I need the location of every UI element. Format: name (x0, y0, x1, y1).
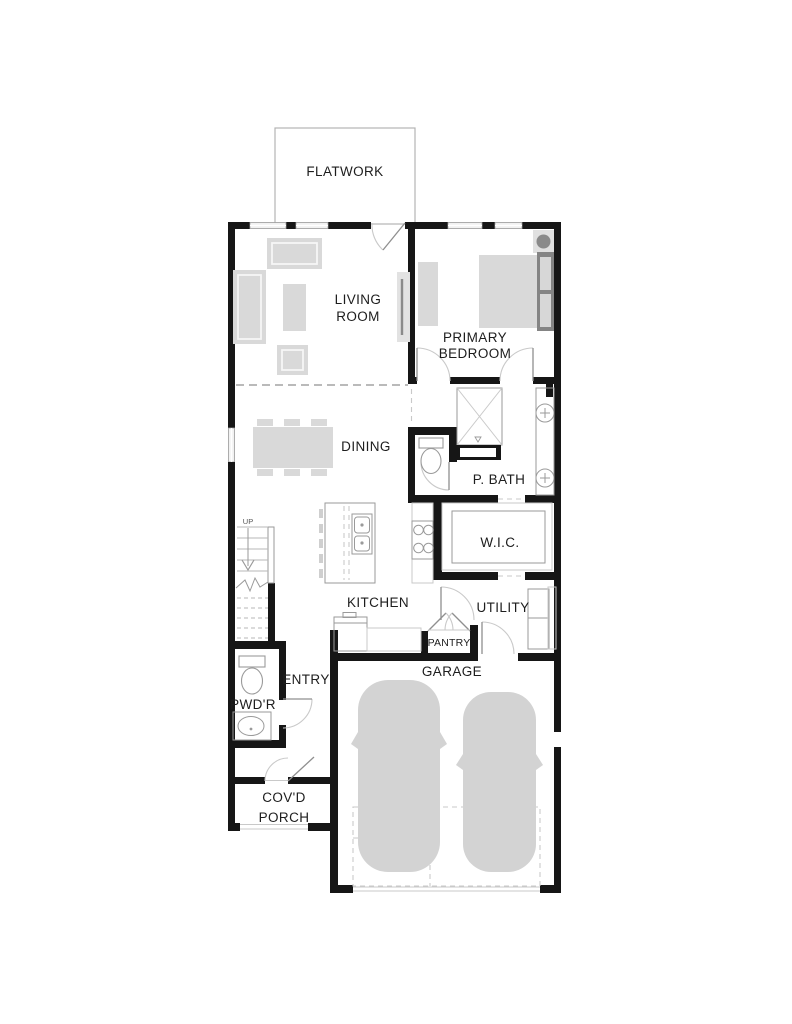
lamp (537, 235, 551, 249)
covered-porch: COV'D PORCH (259, 790, 310, 825)
dresser (418, 262, 438, 326)
window (229, 428, 235, 462)
porch-label: PORCH (259, 810, 310, 825)
garage-wall-gap (553, 732, 562, 747)
pantry: PANTRY (428, 630, 471, 649)
kitchen-counter (367, 628, 421, 651)
garage: GARAGE (351, 664, 543, 886)
primary-bath: P. BATH (419, 388, 554, 495)
washer (528, 589, 549, 618)
porch-label: COV'D (262, 790, 306, 805)
cooktop (412, 503, 433, 583)
dining-room: DINING (253, 419, 391, 476)
kitchen-sink (352, 514, 372, 554)
tv-console (397, 272, 410, 342)
primary-bath-label: P. BATH (473, 472, 526, 487)
stair-rail (268, 527, 274, 583)
dining-chair (311, 419, 327, 426)
coffee-table (283, 284, 306, 331)
floor-plan-page: FLATWORK (0, 0, 792, 1024)
toilet (419, 438, 443, 474)
dining-label: DINING (341, 439, 391, 454)
walk-in-closet: W.I.C. (442, 503, 552, 570)
wic-label: W.I.C. (480, 535, 519, 550)
living-room: LIVING ROOM (233, 238, 410, 375)
refrigerator (334, 613, 367, 652)
bed-mattress (479, 255, 539, 328)
garage-label: GARAGE (422, 664, 482, 679)
dining-table (253, 427, 333, 468)
door-swing-pantry (428, 613, 470, 631)
kitchen-label: KITCHEN (347, 595, 409, 610)
flatwork-area: FLATWORK (275, 128, 415, 224)
utility-room: UTILITY (476, 587, 556, 649)
flatwork-label: FLATWORK (306, 164, 383, 179)
living-room-label: ROOM (336, 309, 380, 324)
powder-room: PWD'R (230, 656, 276, 740)
powder-label: PWD'R (230, 697, 276, 712)
dining-chair (311, 469, 327, 476)
primary-bedroom-label: BEDROOM (439, 346, 512, 361)
floor-plan-drawing: FLATWORK (0, 0, 792, 1024)
door-swing-powder (283, 699, 312, 728)
kitchen-island (325, 503, 375, 583)
primary-bedroom-label: PRIMARY (443, 330, 507, 345)
bath-vanity (536, 388, 554, 495)
pillow (540, 294, 551, 327)
bar-stools (319, 509, 323, 578)
kitchen: KITCHEN (319, 503, 433, 651)
dining-chair (257, 419, 273, 426)
dining-chair (284, 419, 300, 426)
pillow (540, 257, 551, 290)
shower (455, 388, 502, 460)
pantry-label: PANTRY (428, 637, 471, 649)
door-swing-utility (441, 587, 474, 620)
dining-chair (284, 469, 300, 476)
powder-sink (233, 712, 271, 740)
car (351, 680, 447, 872)
primary-bedroom: PRIMARY BEDROOM (418, 230, 554, 361)
door-swing-garage-utility (482, 622, 514, 654)
entry: ENTRY (282, 672, 330, 687)
stairs-up-label: UP (243, 517, 253, 526)
living-room-label: LIVING (335, 292, 382, 307)
utility-label: UTILITY (476, 600, 529, 615)
stair-break-line (236, 578, 268, 591)
entry-label: ENTRY (282, 672, 330, 687)
car (456, 692, 543, 872)
dryer (528, 618, 549, 649)
dining-chair (257, 469, 273, 476)
toilet (239, 656, 265, 694)
door-swing-flatwork (372, 223, 405, 250)
